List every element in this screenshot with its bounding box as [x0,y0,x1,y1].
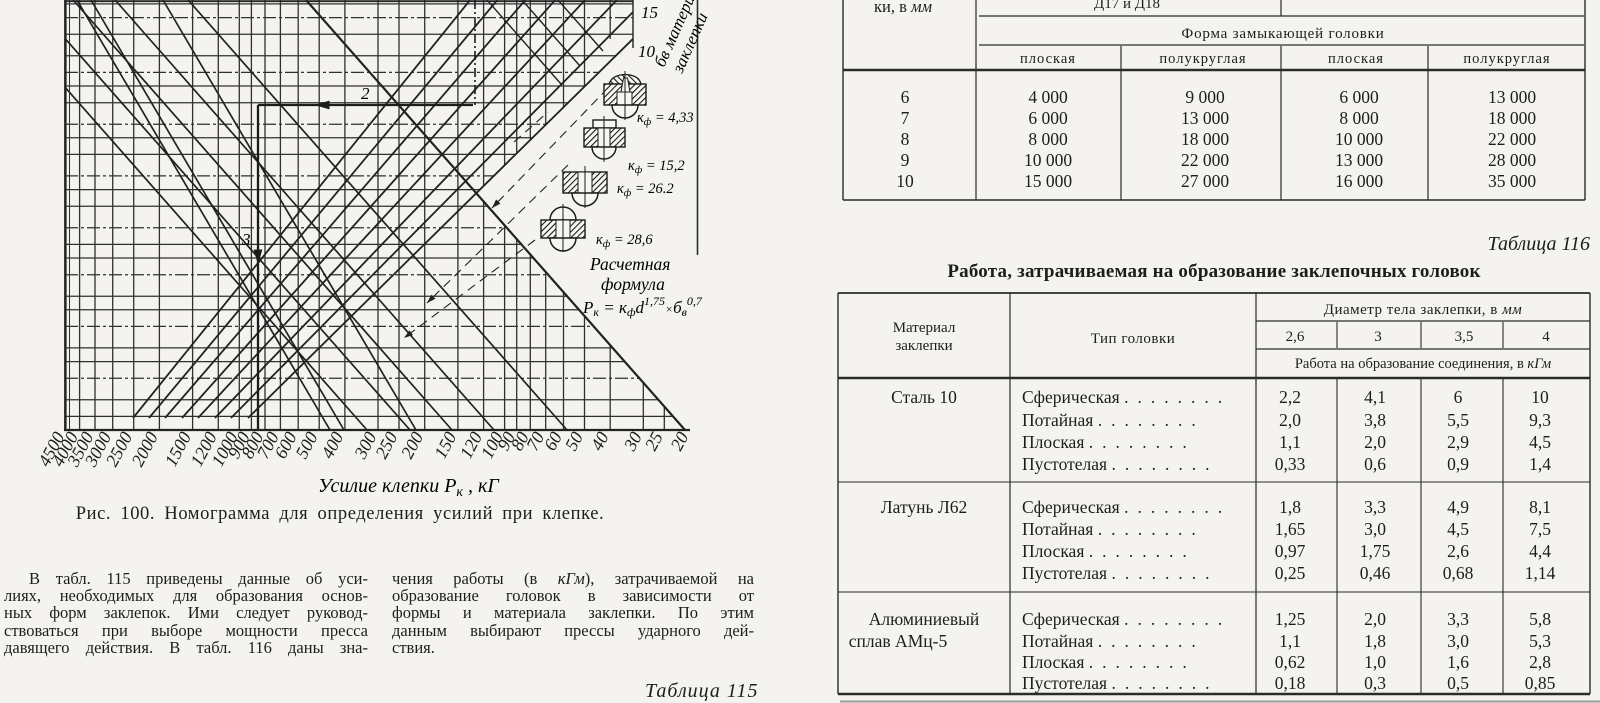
svg-text:Сферическая ........: Сферическая ........ [1022,497,1231,517]
svg-text:0,9: 0,9 [1447,454,1469,474]
svg-text:Таблица 116: Таблица 116 [1488,233,1590,255]
svg-text:2,2: 2,2 [1279,387,1301,407]
svg-text:полукруглая: полукруглая [1159,51,1246,67]
svg-text:8 000: 8 000 [1339,108,1379,128]
svg-text:16 000: 16 000 [1335,171,1383,191]
svg-text:4 000: 4 000 [1028,87,1068,107]
svg-text:6: 6 [901,87,910,107]
svg-text:Работа, затрачиваемая на образ: Работа, затрачиваемая на образование зак… [947,261,1480,282]
svg-text:3,3: 3,3 [1364,497,1386,517]
svg-text:1,4: 1,4 [1529,454,1551,474]
svg-text:13 000: 13 000 [1181,108,1229,128]
svg-text:3,3: 3,3 [1447,609,1469,629]
svg-text:Потайная ........: Потайная ........ [1022,410,1205,430]
svg-text:13 000: 13 000 [1335,150,1383,170]
svg-text:формула: формула [601,274,665,294]
svg-text:4: 4 [1542,329,1550,345]
svg-text:4,9: 4,9 [1447,497,1469,517]
svg-text:0,3: 0,3 [1364,673,1386,693]
svg-text:2,0: 2,0 [1364,432,1386,452]
svg-text:10: 10 [1531,387,1549,407]
svg-text:6: 6 [1454,387,1463,407]
svg-text:6 000: 6 000 [1339,87,1379,107]
svg-text:2000: 2000 [127,428,162,469]
svg-text:0,85: 0,85 [1525,673,1556,693]
svg-text:35 000: 35 000 [1488,171,1536,191]
svg-text:Пустотелая ........: Пустотелая ........ [1022,454,1218,474]
svg-text:10 000: 10 000 [1024,150,1072,170]
svg-text:50: 50 [561,428,587,453]
svg-text:250: 250 [371,428,401,461]
svg-text:1,65: 1,65 [1275,519,1306,539]
svg-text:Усилие клепки Рк , кГ: Усилие клепки Рк , кГ [318,475,500,500]
svg-text:Тип головки: Тип головки [1091,331,1176,347]
svg-text:28 000: 28 000 [1488,150,1536,170]
svg-text:заклепки: заклепки [895,338,952,354]
svg-text:Потайная ........: Потайная ........ [1022,519,1205,539]
svg-text:3,0: 3,0 [1447,631,1469,651]
svg-text:2,9: 2,9 [1447,432,1469,452]
svg-text:5,8: 5,8 [1529,609,1551,629]
svg-text:0,46: 0,46 [1360,563,1391,583]
svg-text:1,75: 1,75 [1360,541,1391,561]
svg-text:8 000: 8 000 [1028,129,1068,149]
svg-text:4,5: 4,5 [1529,432,1551,452]
svg-text:1,1: 1,1 [1279,432,1301,452]
svg-text:4,5: 4,5 [1447,519,1469,539]
svg-text:7: 7 [901,108,910,128]
svg-text:0,18: 0,18 [1275,673,1306,693]
svg-text:0,68: 0,68 [1443,563,1474,583]
svg-text:200: 200 [397,428,427,461]
svg-text:1,1: 1,1 [1279,631,1301,651]
svg-text:1,14: 1,14 [1525,563,1556,583]
svg-text:0,97: 0,97 [1275,541,1306,561]
svg-text:Сферическая ........: Сферическая ........ [1022,609,1231,629]
svg-text:1,8: 1,8 [1364,631,1386,651]
svg-text:Потайная ........: Потайная ........ [1022,631,1205,651]
svg-text:1,6: 1,6 [1447,652,1469,672]
svg-text:9 000: 9 000 [1185,87,1225,107]
svg-text:7,5: 7,5 [1529,519,1551,539]
svg-text:Работа на образование соединен: Работа на образование соединения, в кГм [1295,356,1551,372]
svg-text:10: 10 [896,171,914,191]
svg-text:9: 9 [901,150,910,170]
svg-text:15 000: 15 000 [1024,171,1072,191]
svg-text:20: 20 [666,428,692,453]
svg-text:кф = 15,2: кф = 15,2 [628,158,685,176]
svg-text:18 000: 18 000 [1488,108,1536,128]
svg-text:8,1: 8,1 [1529,497,1551,517]
svg-text:Плоская ........: Плоская ........ [1022,652,1196,672]
svg-text:кф = 28,6: кф = 28,6 [596,232,653,250]
svg-text:2,8: 2,8 [1529,652,1551,672]
svg-text:22 000: 22 000 [1181,150,1229,170]
svg-text:Рк = кфd1,75×бв0,7: Рк = кфd1,75×бв0,7 [582,294,703,319]
svg-text:1,0: 1,0 [1364,652,1386,672]
svg-text:3,8: 3,8 [1364,410,1386,430]
svg-text:3: 3 [241,230,251,249]
svg-text:2,0: 2,0 [1364,609,1386,629]
svg-text:27 000: 27 000 [1181,171,1229,191]
svg-text:400: 400 [317,428,347,461]
svg-text:40: 40 [587,428,613,453]
svg-text:1500: 1500 [161,428,196,469]
svg-text:22 000: 22 000 [1488,129,1536,149]
svg-text:Латунь Л62: Латунь Л62 [881,497,967,517]
svg-text:Пустотелая ........: Пустотелая ........ [1022,563,1218,583]
svg-text:1,8: 1,8 [1279,497,1301,517]
svg-text:кф = 26.2: кф = 26.2 [617,181,674,199]
svg-text:13 000: 13 000 [1488,87,1536,107]
svg-text:Сферическая ........: Сферическая ........ [1022,387,1231,407]
svg-text:Пустотелая ........: Пустотелая ........ [1022,673,1218,693]
svg-text:3: 3 [1374,329,1382,345]
svg-text:15: 15 [641,3,658,22]
svg-text:1,25: 1,25 [1275,609,1306,629]
svg-text:3,5: 3,5 [1455,329,1474,345]
svg-text:10 000: 10 000 [1335,129,1383,149]
svg-text:25: 25 [641,428,667,453]
svg-text:Д17 и Д18: Д17 и Д18 [1094,0,1160,12]
svg-text:плоская: плоская [1328,51,1384,67]
svg-text:150: 150 [430,428,460,461]
svg-text:0,62: 0,62 [1275,652,1306,672]
svg-text:Расчетная: Расчетная [589,254,670,274]
svg-text:6 000: 6 000 [1028,108,1068,128]
svg-text:Плоская ........: Плоская ........ [1022,432,1196,452]
svg-text:2: 2 [361,84,370,103]
svg-text:0,33: 0,33 [1275,454,1306,474]
svg-text:Материал: Материал [893,320,956,336]
svg-text:4,4: 4,4 [1529,541,1551,561]
svg-text:0,25: 0,25 [1275,563,1306,583]
svg-text:плоская: плоская [1020,51,1076,67]
svg-text:полукруглая: полукруглая [1463,51,1550,67]
svg-text:8: 8 [901,129,910,149]
svg-text:Сталь 10: Сталь 10 [891,387,957,407]
svg-text:5,5: 5,5 [1447,410,1469,430]
svg-text:9,3: 9,3 [1529,410,1551,430]
svg-text:Плоская ........: Плоская ........ [1022,541,1196,561]
svg-text:2,6: 2,6 [1447,541,1469,561]
svg-text:5,3: 5,3 [1529,631,1551,651]
svg-text:4,1: 4,1 [1364,387,1386,407]
svg-text:Диаметр тела заклепки, в мм: Диаметр тела заклепки, в мм [1324,302,1523,318]
svg-text:0,5: 0,5 [1447,673,1469,693]
svg-text:Алюминиевый: Алюминиевый [869,609,980,629]
svg-text:сплав АМц-5: сплав АМц-5 [849,631,948,651]
svg-text:2,6: 2,6 [1286,329,1305,345]
svg-text:Форма замыкающей головки: Форма замыкающей головки [1181,26,1384,42]
svg-text:кф = 4,33: кф = 4,33 [637,110,694,128]
svg-text:3,0: 3,0 [1364,519,1386,539]
svg-text:2,0: 2,0 [1279,410,1301,430]
svg-text:18 000: 18 000 [1181,129,1229,149]
svg-text:500: 500 [291,428,321,461]
svg-text:0,6: 0,6 [1364,454,1386,474]
svg-text:ки, в мм: ки, в мм [874,0,933,16]
